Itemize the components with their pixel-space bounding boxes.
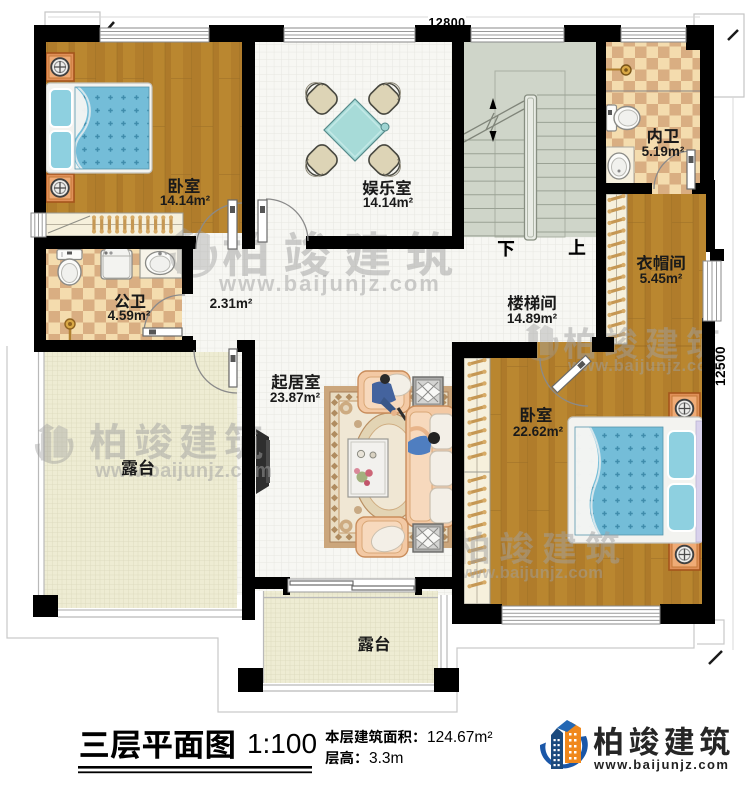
svg-text:www.baijunjz.com: www.baijunjz.com — [593, 757, 729, 772]
svg-text:23.87m²: 23.87m² — [270, 390, 321, 405]
svg-text:5.19m²: 5.19m² — [642, 144, 685, 159]
svg-text:14.14m²: 14.14m² — [363, 195, 414, 210]
svg-text:12800: 12800 — [428, 16, 465, 30]
svg-text:5.45m²: 5.45m² — [640, 271, 683, 286]
svg-text:www.baijunjz.com: www.baijunjz.com — [455, 564, 603, 582]
svg-text:14.89m²: 14.89m² — [507, 311, 558, 326]
svg-text:www.baijunjz.com: www.baijunjz.com — [218, 271, 441, 296]
svg-text:4.59m²: 4.59m² — [108, 308, 151, 323]
svg-text:14.14m²: 14.14m² — [160, 193, 211, 208]
svg-text:124.67m²: 124.67m² — [427, 729, 492, 746]
svg-text:3.3m: 3.3m — [369, 750, 403, 767]
svg-text:1:100: 1:100 — [247, 728, 317, 759]
svg-text:2.31m²: 2.31m² — [210, 296, 253, 311]
svg-text:12500: 12500 — [713, 346, 728, 386]
svg-text:22.62m²: 22.62m² — [513, 424, 564, 439]
svg-text:www.baijunjz.com: www.baijunjz.com — [567, 357, 723, 375]
